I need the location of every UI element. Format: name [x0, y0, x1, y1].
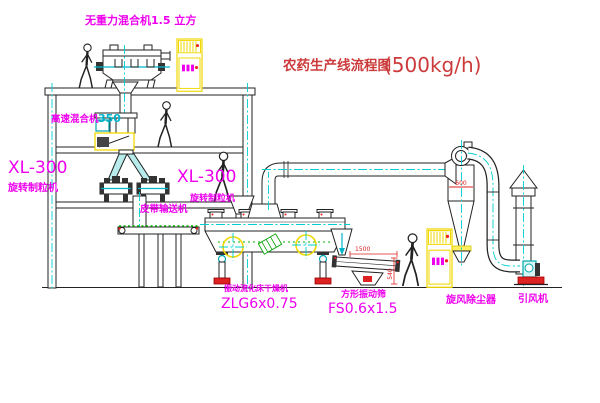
sieve-height-dimension-text: 540	[387, 268, 394, 280]
belt-conveyor-label: 皮带输送机	[139, 203, 188, 215]
control-cabinet-right	[427, 229, 452, 287]
granulator-model-label-mid: XL-300	[177, 167, 236, 187]
belt-conveyor	[118, 226, 199, 287]
fluid-bed-dryer	[200, 210, 350, 285]
dryer-model-label: ZLG6x0.75	[221, 296, 298, 312]
sieve-length-dimension-text: 1500	[355, 246, 370, 253]
cyclone-outlet-pipe	[468, 153, 520, 266]
cyclone-dimension-text: 600	[455, 180, 467, 187]
cyclone-label: 旋风除尘器	[445, 293, 497, 306]
person-roof	[79, 44, 92, 88]
person-ground	[403, 234, 419, 286]
person-second-floor	[158, 102, 172, 147]
dryer-name-label: 振动流化床干燥机	[224, 283, 288, 293]
control-cabinet-top	[177, 39, 202, 91]
high-speed-mixer-label: 高速混合机	[51, 113, 99, 125]
granulator-name-label-mid: 旋转制粒机	[189, 192, 235, 204]
diagram-canvas: 无重力混合机1.5 立方 农药生产线流程图 (500kg/h) 高速混合机 35…	[0, 0, 600, 403]
sieve-name-label: 方形振动筛	[341, 288, 386, 300]
diagram-title: 农药生产线流程图	[282, 57, 391, 74]
fan-label: 引风机	[518, 292, 548, 305]
granulator-name-label-left: 旋转制粒机	[7, 181, 58, 194]
high-speed-mixer-size-label: 350	[98, 112, 121, 125]
flow-diagram: 无重力混合机1.5 立方 农药生产线流程图 (500kg/h) 高速混合机 35…	[0, 0, 600, 403]
gravity-mixer-label: 无重力混合机1.5 立方	[84, 13, 196, 27]
dryer-mount-right	[315, 252, 331, 284]
exhaust-duct	[248, 161, 462, 218]
granulator-left	[100, 176, 132, 202]
granulator-model-label-left: XL-300	[8, 158, 67, 178]
diagram-title-capacity: (500kg/h)	[384, 53, 481, 77]
dryer-mount-left	[214, 252, 230, 284]
sieve-model-label: FS0.6x1.5	[328, 301, 398, 317]
